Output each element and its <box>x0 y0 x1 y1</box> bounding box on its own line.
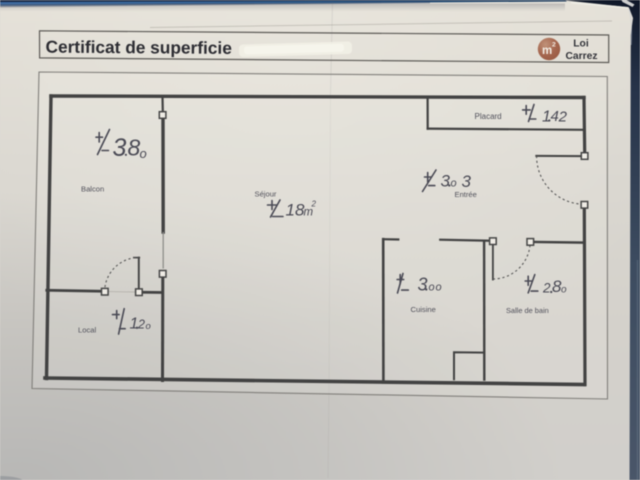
svg-text:2: 2 <box>558 109 568 126</box>
svg-text:3: 3 <box>441 172 451 191</box>
svg-text:18: 18 <box>286 201 305 220</box>
svg-text:Local: Local <box>78 326 96 335</box>
svg-text:o: o <box>140 146 147 161</box>
svg-text:3: 3 <box>113 134 127 162</box>
svg-text:Certificat de superficie: Certificat de superficie <box>45 37 232 58</box>
svg-text:Séjour: Séjour <box>255 190 277 199</box>
svg-text:o: o <box>146 321 151 332</box>
svg-text:m: m <box>542 45 552 57</box>
svg-text:Placard: Placard <box>475 112 502 121</box>
svg-text:2: 2 <box>552 42 556 49</box>
svg-text:2: 2 <box>311 200 317 209</box>
svg-text:Entrée: Entrée <box>455 190 477 199</box>
svg-text:o: o <box>451 178 457 190</box>
svg-text:o: o <box>436 282 442 294</box>
svg-text:3: 3 <box>418 275 428 295</box>
svg-text:4: 4 <box>551 108 559 125</box>
svg-text:3: 3 <box>462 172 472 191</box>
svg-text:Carrez: Carrez <box>565 51 597 62</box>
svg-text:Cuisine: Cuisine <box>411 305 436 314</box>
svg-text:Salle de bain: Salle de bain <box>506 306 549 315</box>
svg-text:2: 2 <box>542 281 551 296</box>
svg-text:Balcon: Balcon <box>81 185 104 194</box>
svg-text:Loi: Loi <box>573 39 589 50</box>
svg-text:o: o <box>561 285 567 296</box>
svg-text:2: 2 <box>137 317 145 331</box>
svg-text:o: o <box>429 282 435 294</box>
